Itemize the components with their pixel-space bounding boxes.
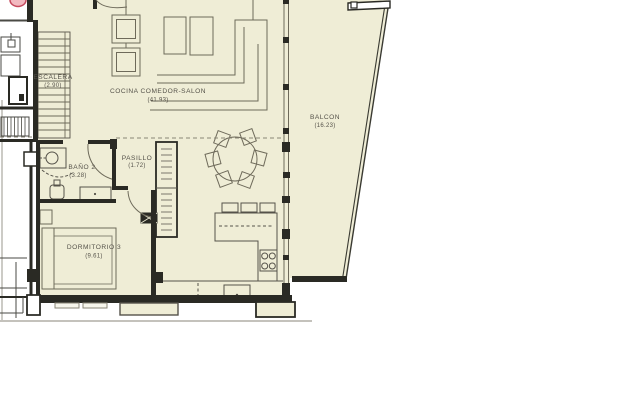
entrance-step (256, 302, 295, 317)
floor-plan-drawing: ESCALERA (2.90) COCINA COMEDOR-SALON (41… (0, 0, 630, 401)
neighbor-sink-icon (1, 33, 20, 52)
label-bano: BAÑO 2 (68, 162, 95, 171)
balcony-floor (290, 0, 387, 278)
window-bay (120, 303, 178, 315)
area-balcon: (16.23) (314, 123, 335, 129)
balcony-bottom-wall (292, 276, 347, 282)
corner-step (27, 295, 40, 315)
area-escalera: (2.90) (44, 83, 61, 89)
neighbor-stairs-hatch (1, 117, 29, 136)
entry-door-jamb (93, 0, 97, 9)
label-balcon: BALCON (310, 114, 340, 121)
area-pasillo: (1.72) (128, 163, 145, 169)
logo-fragment-icon (10, 0, 26, 7)
label-pasillo: PASILLO (122, 155, 153, 162)
area-bano: (3.28) (69, 173, 86, 179)
window-sill (55, 303, 79, 308)
floor-plan-page: ESCALERA (2.90) COCINA COMEDOR-SALON (41… (0, 0, 630, 401)
label-salon: COCINA COMEDOR-SALON (110, 88, 206, 95)
neighbor-door-recess (24, 152, 37, 166)
label-escalera: ESCALERA (33, 74, 72, 81)
floor-areas (33, 0, 387, 296)
area-salon: (41.93) (147, 98, 168, 104)
neighbor-bathtub-icon (9, 77, 27, 104)
window-sill (83, 303, 107, 308)
bottom-wall (33, 295, 292, 303)
label-dormitorio: DORMITORIO 3 (67, 244, 121, 251)
area-dormitorio: (9.61) (85, 254, 102, 260)
